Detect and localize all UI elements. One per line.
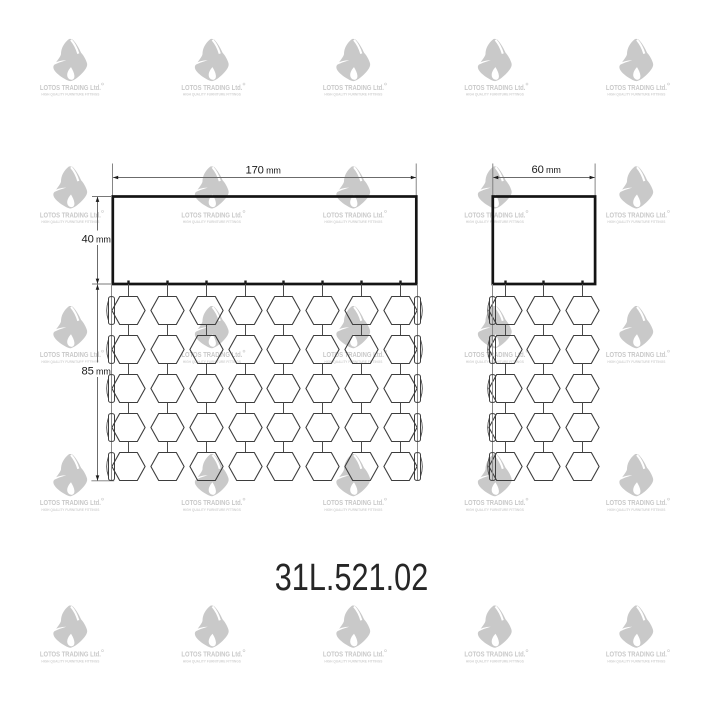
svg-text:60 mm: 60 mm <box>532 164 561 176</box>
svg-text:40 mm: 40 mm <box>82 233 111 245</box>
svg-text:170 mm: 170 mm <box>246 165 281 177</box>
svg-text:85 mm: 85 mm <box>82 365 111 377</box>
svg-text:31L.521.02: 31L.521.02 <box>275 557 429 599</box>
